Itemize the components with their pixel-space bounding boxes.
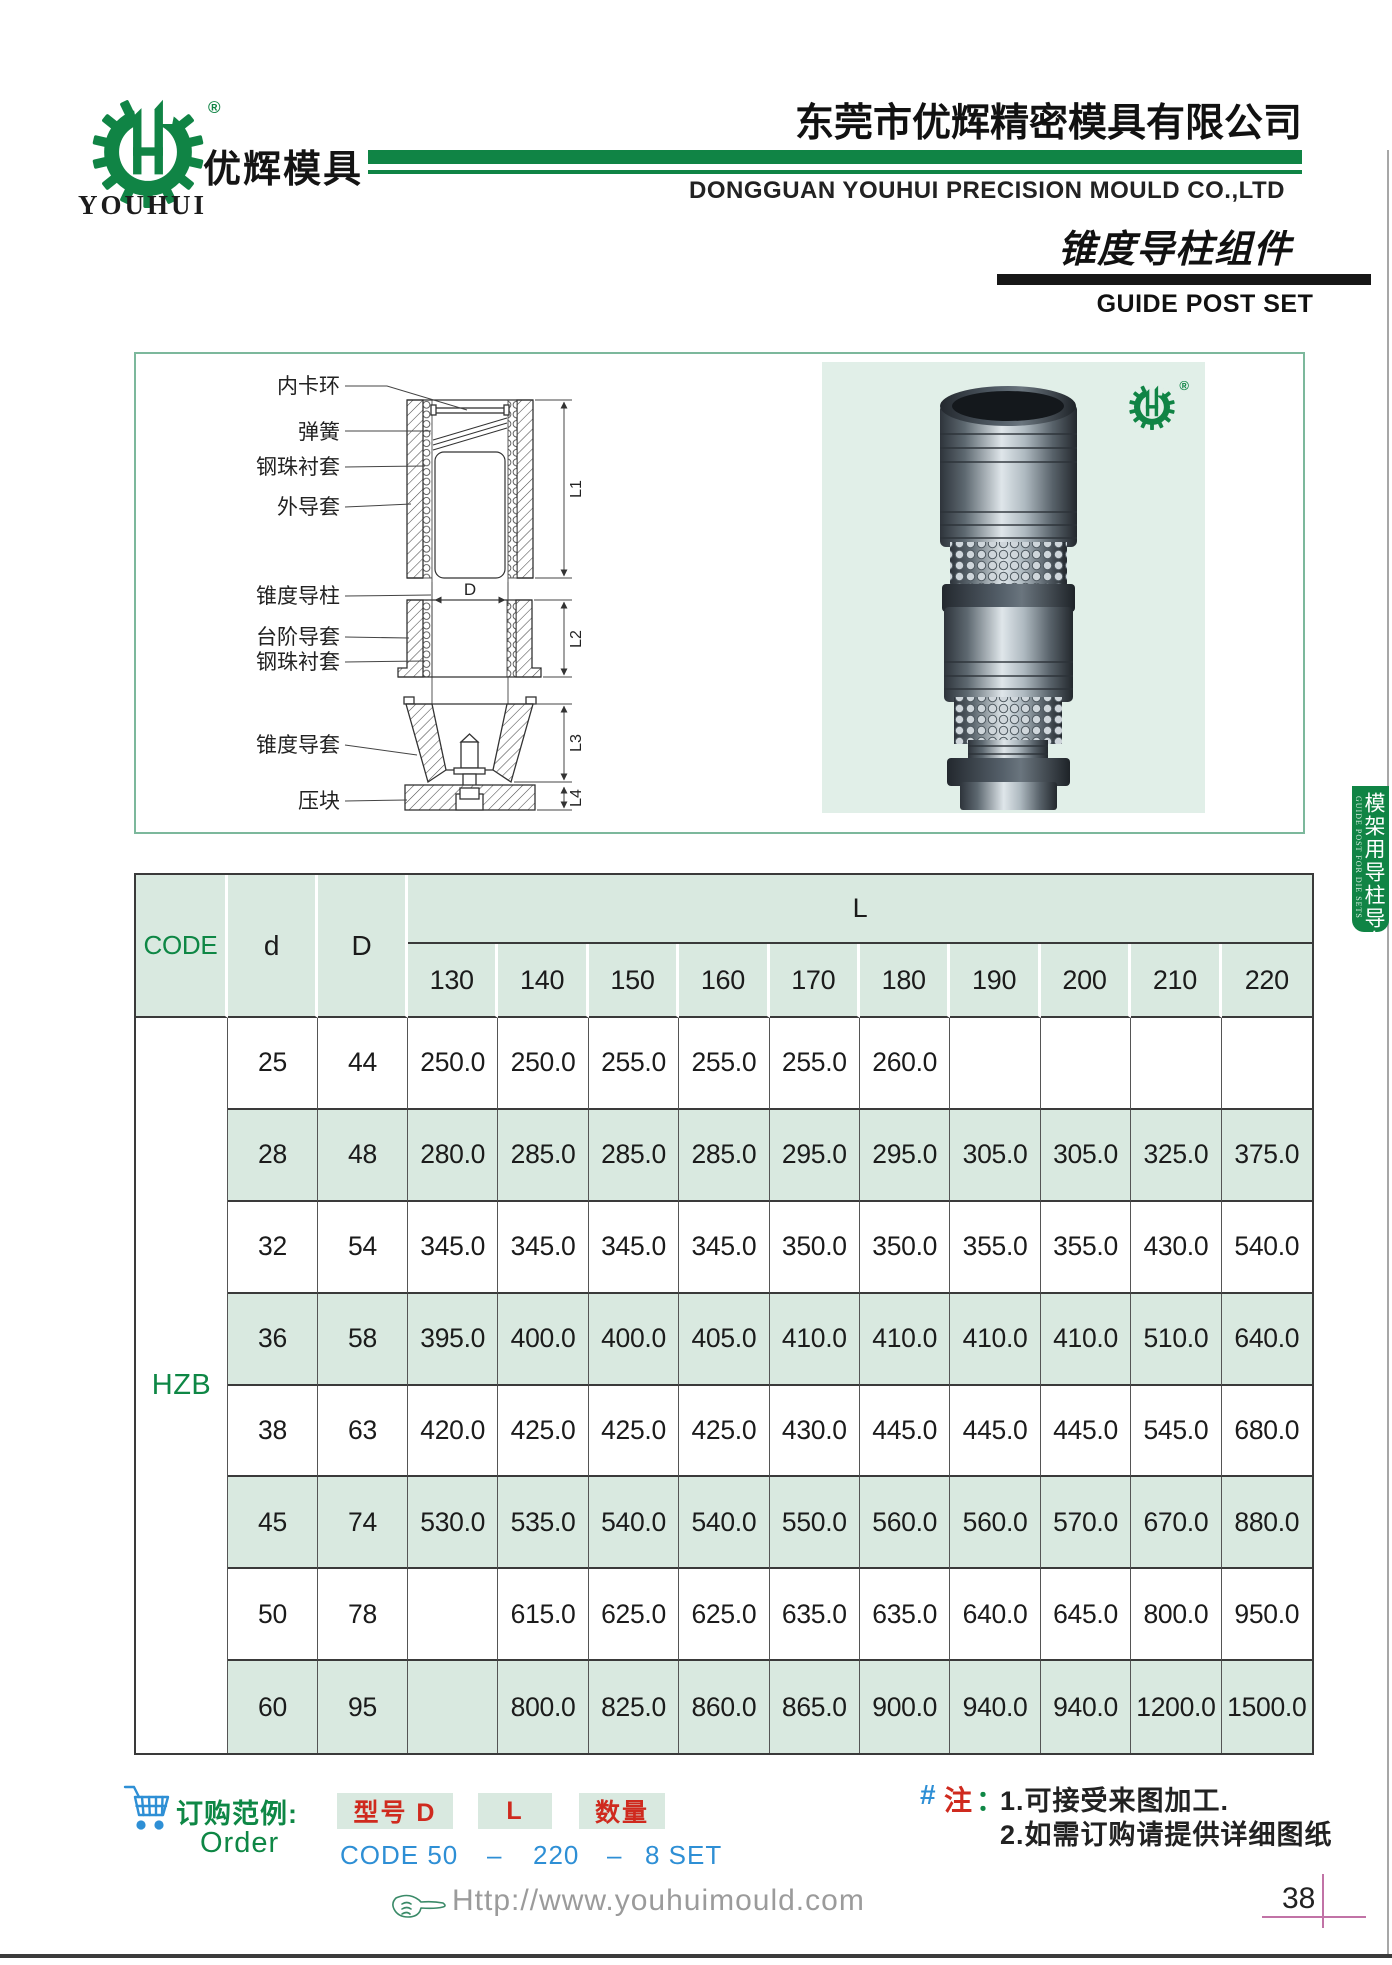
leader-lines	[345, 386, 467, 801]
product-photo: ®	[822, 362, 1205, 813]
photo-gear-logo-icon	[1129, 384, 1175, 430]
cell-length-value: 280.0	[408, 1110, 498, 1202]
cell-d: 38	[228, 1386, 318, 1478]
dim-L1: L1	[568, 480, 585, 498]
cell-length-value: 425.0	[589, 1386, 679, 1478]
title-underline-bar	[997, 274, 1371, 285]
part-labels: 内卡环 弹簧 钢珠衬套 外导套 锥度导柱 台阶导套 钢珠衬套 锥度导套 压块	[256, 375, 340, 813]
cell-d: 36	[228, 1294, 318, 1386]
cell-length-value: 1200.0	[1131, 1661, 1221, 1753]
header-green-line	[368, 170, 1302, 174]
label-taper-guide-post: 锥度导柱	[256, 585, 340, 608]
cell-length-value: 445.0	[950, 1386, 1040, 1478]
cell-length-value: 350.0	[770, 1202, 860, 1294]
cell-length-value: 425.0	[679, 1386, 769, 1478]
cell-length-value: 425.0	[498, 1386, 588, 1478]
cell-length-value: 325.0	[1131, 1110, 1221, 1202]
cell-length-value: 295.0	[860, 1110, 950, 1202]
technical-drawing: D L1 L2 L3 L4 内卡环 弹簧 钢珠衬套 外导套 锥度导柱 台阶导套 …	[134, 352, 834, 832]
product-title-cn: 锥度导柱组件	[1058, 218, 1292, 273]
length-header: 130	[408, 944, 498, 1018]
length-header: 200	[1041, 944, 1131, 1018]
cell-length-value: 510.0	[1131, 1294, 1221, 1386]
page-number: 38	[1282, 1882, 1315, 1916]
cell-length-value: 625.0	[679, 1569, 769, 1661]
cell-length-value: 345.0	[679, 1202, 769, 1294]
step-bushing-section	[398, 600, 541, 677]
page-edge-rule	[1387, 150, 1389, 1956]
cell-length-value: 420.0	[408, 1386, 498, 1478]
cell-d: 28	[228, 1110, 318, 1202]
cell-length-value: 560.0	[860, 1477, 950, 1569]
cell-length-value: 550.0	[770, 1477, 860, 1569]
cell-length-value: 255.0	[589, 1018, 679, 1110]
cell-length-value: 530.0	[408, 1477, 498, 1569]
cell-length-value: 635.0	[770, 1569, 860, 1661]
taper-sleeve-section	[404, 697, 536, 788]
length-header: 160	[679, 944, 769, 1018]
cell-length-value: 560.0	[950, 1477, 1040, 1569]
cell-length-value: 305.0	[1041, 1110, 1131, 1202]
note-label: 注	[944, 1779, 972, 1819]
cell-length-value: 645.0	[1041, 1569, 1131, 1661]
order-box-qty: 数量	[579, 1793, 665, 1829]
dim-L2: L2	[568, 630, 585, 648]
label-taper-sleeve: 锥度导套	[256, 734, 340, 757]
cell-d: 50	[228, 1569, 318, 1661]
cell-length-value: 570.0	[1041, 1477, 1131, 1569]
website-url: Http://www.youhuimould.com	[452, 1884, 865, 1918]
cell-length-value: 680.0	[1222, 1386, 1312, 1478]
cell-length-value: 295.0	[770, 1110, 860, 1202]
cell-length-value: 400.0	[589, 1294, 679, 1386]
page-number-rule-h	[1262, 1916, 1366, 1918]
cell-length-value: 255.0	[770, 1018, 860, 1110]
cell-length-value: 410.0	[950, 1294, 1040, 1386]
cell-length-value: 255.0	[679, 1018, 769, 1110]
brand-name-cn: 优辉模具	[203, 138, 363, 193]
shopping-cart-icon	[122, 1782, 172, 1834]
order-box-length: L	[478, 1793, 552, 1829]
order-example-dash1: –	[487, 1840, 502, 1871]
cell-length-value: 285.0	[679, 1110, 769, 1202]
cell-length-value: 250.0	[408, 1018, 498, 1110]
cell-length-value: 1500.0	[1222, 1661, 1312, 1753]
page-bottom-rule	[0, 1954, 1392, 1958]
cell-length-value: 285.0	[589, 1110, 679, 1202]
cell-length-value: 410.0	[860, 1294, 950, 1386]
cell-length-value: 345.0	[589, 1202, 679, 1294]
cell-length-value: 445.0	[860, 1386, 950, 1478]
outer-sleeve-section	[407, 400, 533, 578]
label-snap-ring: 内卡环	[277, 375, 340, 398]
cell-length-value: 260.0	[860, 1018, 950, 1110]
order-example-label-cn: 订购范例:	[176, 1792, 298, 1831]
cell-length-value: 825.0	[589, 1661, 679, 1753]
cell-length-value: 430.0	[770, 1386, 860, 1478]
dim-L3: L3	[568, 734, 585, 752]
cell-length-value: 800.0	[498, 1661, 588, 1753]
cell-length-value: 400.0	[498, 1294, 588, 1386]
cell-d: 25	[228, 1018, 318, 1110]
cell-length-value: 900.0	[860, 1661, 950, 1753]
cell-D: 54	[318, 1202, 408, 1294]
dim-L4: L4	[568, 789, 585, 807]
cell-D: 74	[318, 1477, 408, 1569]
registered-mark: ®	[208, 98, 221, 118]
order-example-qty: 8 SET	[645, 1840, 722, 1871]
dim-D: D	[464, 580, 476, 599]
cell-length-value	[1041, 1018, 1131, 1110]
cell-length-value: 640.0	[950, 1569, 1040, 1661]
side-tab-label-cn: 模架用导柱导套	[1358, 792, 1388, 953]
cell-length-value: 615.0	[498, 1569, 588, 1661]
cell-length-value: 535.0	[498, 1477, 588, 1569]
code-column-header: CODE	[136, 875, 228, 1018]
length-header: 170	[770, 944, 860, 1018]
pointing-hand-icon	[390, 1884, 446, 1922]
header-green-bar	[368, 150, 1302, 164]
photo-registered-mark: ®	[1179, 378, 1189, 393]
cell-length-value: 640.0	[1222, 1294, 1312, 1386]
cell-length-value: 250.0	[498, 1018, 588, 1110]
cell-length-value: 865.0	[770, 1661, 860, 1753]
length-header: 180	[860, 944, 950, 1018]
cell-length-value: 350.0	[860, 1202, 950, 1294]
cell-length-value: 410.0	[1041, 1294, 1131, 1386]
cell-length-value: 430.0	[1131, 1202, 1221, 1294]
cell-D: 63	[318, 1386, 408, 1478]
cell-length-value	[1131, 1018, 1221, 1110]
pressure-block-section	[405, 785, 535, 810]
cell-length-value	[950, 1018, 1040, 1110]
label-pressure-block: 压块	[298, 790, 340, 813]
cell-length-value: 345.0	[498, 1202, 588, 1294]
cell-length-value: 540.0	[589, 1477, 679, 1569]
cell-length-value: 410.0	[770, 1294, 860, 1386]
label-ball-bushing-2: 钢珠衬套	[256, 651, 340, 674]
cell-length-value: 625.0	[589, 1569, 679, 1661]
cell-length-value: 540.0	[1222, 1202, 1312, 1294]
cell-length-value: 285.0	[498, 1110, 588, 1202]
cell-d: 32	[228, 1202, 318, 1294]
cell-length-value: 355.0	[1041, 1202, 1131, 1294]
cell-d: 45	[228, 1477, 318, 1569]
product-title-en: GUIDE POST SET	[1060, 290, 1350, 319]
note-line-2: 2.如需订购请提供详细图纸	[1000, 1813, 1333, 1852]
cell-length-value: 405.0	[679, 1294, 769, 1386]
brand-name-en: YOUHUI	[78, 190, 207, 221]
length-header: 220	[1222, 944, 1312, 1018]
company-name-cn: 东莞市优辉精密模具有限公司	[795, 92, 1302, 148]
cell-D: 48	[318, 1110, 408, 1202]
spec-table: CODEdDL130140150160170180190200210220HZB…	[134, 873, 1314, 1755]
cell-D: 44	[318, 1018, 408, 1110]
cell-length-value: 305.0	[950, 1110, 1040, 1202]
company-name-en: DONGGUAN YOUHUI PRECISION MOULD CO.,LTD	[689, 177, 1285, 205]
length-header: 140	[498, 944, 588, 1018]
cell-length-value	[408, 1569, 498, 1661]
order-box-model: 型号 D	[337, 1793, 453, 1829]
order-example-dash2: –	[607, 1840, 622, 1871]
cell-length-value: 445.0	[1041, 1386, 1131, 1478]
cell-length-value: 940.0	[1041, 1661, 1131, 1753]
cell-D: 78	[318, 1569, 408, 1661]
cell-length-value: 375.0	[1222, 1110, 1312, 1202]
label-ball-bushing-1: 钢珠衬套	[256, 456, 340, 479]
cell-d: 60	[228, 1661, 318, 1753]
catalog-page: ® 优辉模具 YOUHUI 东莞市优辉精密模具有限公司 DONGGUAN YOU…	[0, 0, 1392, 1965]
L-group-header: L	[408, 875, 1312, 944]
length-header: 210	[1131, 944, 1221, 1018]
cell-length-value: 860.0	[679, 1661, 769, 1753]
cell-length-value: 545.0	[1131, 1386, 1221, 1478]
code-value-cell: HZB	[136, 1018, 228, 1753]
cell-length-value: 940.0	[950, 1661, 1040, 1753]
cell-D: 95	[318, 1661, 408, 1753]
cell-length-value: 670.0	[1131, 1477, 1221, 1569]
cell-length-value	[408, 1661, 498, 1753]
cell-length-value: 540.0	[679, 1477, 769, 1569]
cell-length-value: 355.0	[950, 1202, 1040, 1294]
d-column-header: d	[228, 875, 318, 1018]
cell-length-value: 635.0	[860, 1569, 950, 1661]
cell-length-value: 880.0	[1222, 1477, 1312, 1569]
label-spring: 弹簧	[298, 421, 340, 444]
note-hash-mark: #	[920, 1779, 936, 1811]
order-example-length: 220	[533, 1840, 579, 1871]
order-example-code: CODE 50	[340, 1840, 458, 1871]
length-header: 150	[589, 944, 679, 1018]
page-number-rule-v	[1322, 1874, 1324, 1928]
order-example-label-en: Order	[200, 1827, 279, 1860]
cell-length-value	[1222, 1018, 1312, 1110]
cell-length-value: 345.0	[408, 1202, 498, 1294]
length-header: 190	[950, 944, 1040, 1018]
cell-length-value: 800.0	[1131, 1569, 1221, 1661]
cell-length-value: 395.0	[408, 1294, 498, 1386]
cell-D: 58	[318, 1294, 408, 1386]
side-category-tab: GUIDE POST FOR DIE SETS 模架用导柱导套	[1352, 786, 1389, 932]
D-column-header: D	[318, 875, 408, 1018]
label-step-bushing: 台阶导套	[256, 626, 340, 649]
cell-length-value: 950.0	[1222, 1569, 1312, 1661]
label-outer-sleeve: 外导套	[277, 496, 340, 519]
